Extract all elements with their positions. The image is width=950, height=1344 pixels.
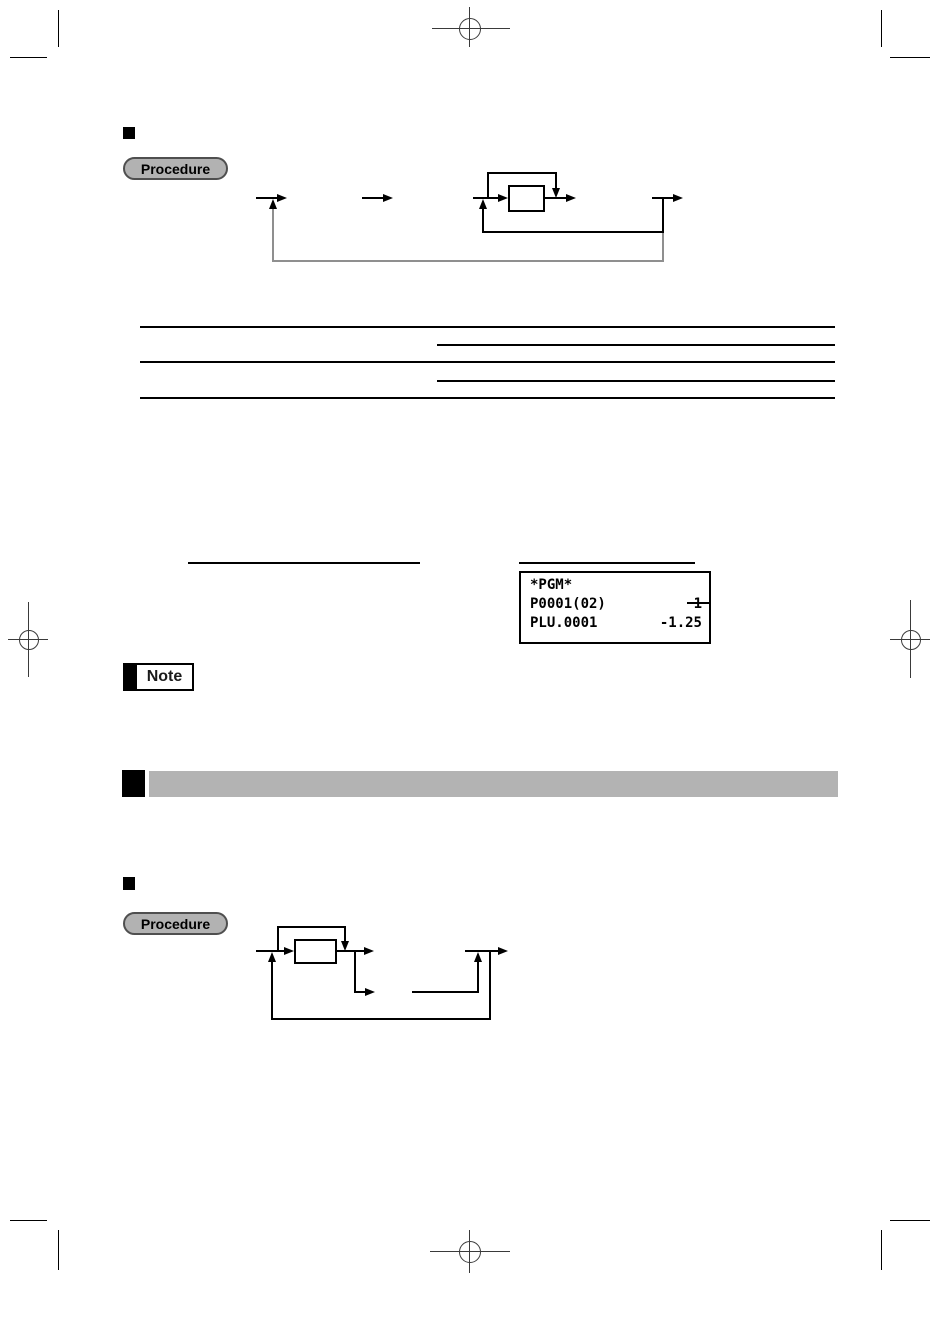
- flow-line: [271, 961, 273, 1020]
- flow-line: [271, 1018, 491, 1020]
- flow-line: [482, 231, 664, 233]
- display-line-3: PLU.0001 -1.25: [530, 614, 702, 633]
- flow-line: [362, 197, 384, 199]
- display-value-1: 1: [694, 595, 702, 614]
- display-line-1: *PGM*: [530, 576, 702, 595]
- note-badge: Note: [135, 663, 194, 691]
- crop-mark-bottom-right-v: [881, 1230, 882, 1270]
- flow-line: [489, 951, 491, 1020]
- flow-line: [277, 926, 346, 928]
- crop-mark-top-left-h: [10, 57, 47, 58]
- arrowhead-up-icon: [474, 952, 482, 962]
- flow-line: [465, 950, 499, 952]
- procedure-badge: Procedure: [123, 912, 228, 935]
- table-rule: [140, 326, 835, 328]
- arrowhead-right-icon: [284, 947, 294, 955]
- crop-mark-top-right-h: [890, 57, 930, 58]
- table-rule: [437, 380, 835, 382]
- procedure-badge: Procedure: [123, 157, 228, 180]
- table-rule: [437, 344, 835, 346]
- crop-mark-top-right-v: [881, 10, 882, 47]
- section-header-bar: [149, 771, 838, 797]
- arrowhead-right-icon: [365, 988, 375, 996]
- table-rule: [140, 361, 835, 363]
- heading-underline: [188, 562, 420, 564]
- flow-line: [482, 208, 484, 233]
- flow-line-gray: [272, 260, 664, 262]
- display-mode-text: *PGM*: [530, 576, 572, 595]
- arrowhead-right-icon: [383, 194, 393, 202]
- flow-line: [487, 172, 489, 199]
- section-bullet-icon: [123, 877, 135, 890]
- table-rule: [140, 397, 835, 399]
- flow-line-gray: [272, 208, 274, 262]
- flow-line: [337, 950, 365, 952]
- arrowhead-up-icon: [269, 199, 277, 209]
- arrowhead-right-icon: [566, 194, 576, 202]
- heading-underline: [519, 562, 695, 564]
- flow-line: [555, 172, 557, 188]
- flow-line: [277, 926, 279, 952]
- flow-line: [354, 951, 356, 993]
- section-header-bullet-icon: [122, 770, 145, 797]
- display-line-2: P0001(02) 1: [530, 595, 702, 614]
- arrowhead-right-icon: [498, 194, 508, 202]
- note-bullet-icon: [123, 663, 135, 691]
- key-box: [508, 185, 545, 212]
- arrowhead-up-icon: [479, 199, 487, 209]
- flow-line: [412, 991, 479, 993]
- manual-page: Procedure: [0, 0, 950, 1344]
- callout-line: [687, 602, 710, 604]
- display-plu-code: PLU.0001: [530, 614, 597, 633]
- flow-line: [487, 172, 557, 174]
- arrowhead-right-icon: [673, 194, 683, 202]
- crop-mark-top-left-v: [58, 10, 59, 47]
- arrowhead-right-icon: [277, 194, 287, 202]
- arrowhead-down-icon: [552, 188, 560, 198]
- section-bullet-icon: [123, 127, 135, 139]
- display-program-number: P0001(02): [530, 595, 606, 614]
- flow-line: [662, 198, 664, 233]
- display-sample-box: *PGM* P0001(02) 1 PLU.0001 -1.25: [519, 571, 711, 644]
- crop-mark-bottom-right-h: [890, 1220, 930, 1221]
- flow-line: [477, 961, 479, 993]
- flow-line: [344, 926, 346, 942]
- crop-mark-bottom-left-v: [58, 1230, 59, 1270]
- arrowhead-up-icon: [268, 952, 276, 962]
- display-price: -1.25: [660, 614, 702, 633]
- crop-mark-bottom-left-h: [10, 1220, 47, 1221]
- arrowhead-right-icon: [498, 947, 508, 955]
- key-box: [294, 939, 337, 964]
- arrowhead-right-icon: [364, 947, 374, 955]
- flow-line-gray: [662, 233, 664, 262]
